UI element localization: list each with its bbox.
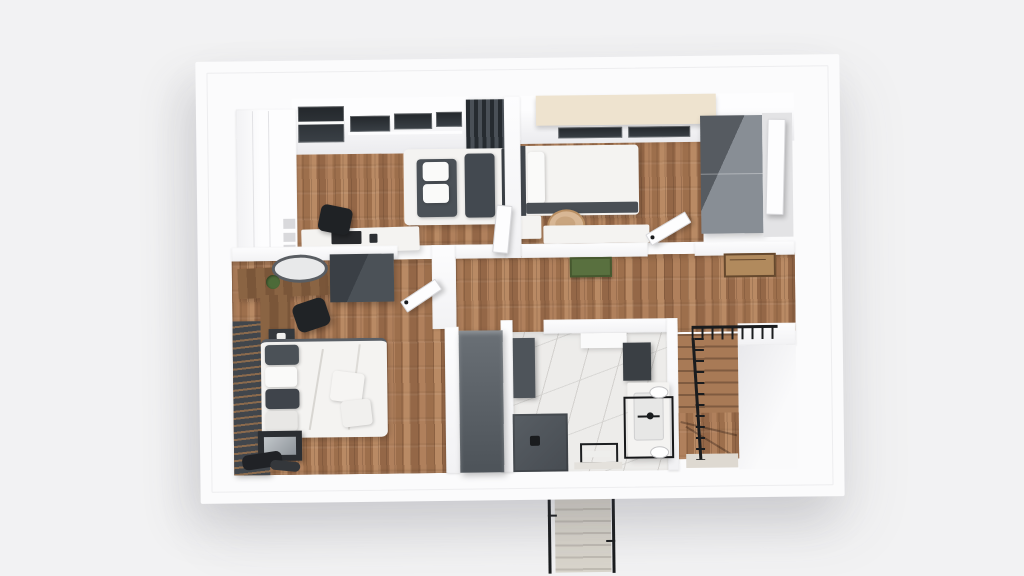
bed1-pillow-1 — [423, 162, 449, 181]
faucet-bar — [638, 415, 660, 417]
desk1-item — [369, 234, 377, 243]
white-wardrobe — [236, 109, 298, 254]
tall-wardrobe — [459, 330, 505, 473]
bedroom2-window-2 — [628, 126, 690, 138]
entry-rail-left — [548, 494, 552, 574]
entry-stair-treads — [555, 496, 612, 573]
apartment-plan — [0, 0, 1024, 576]
skylight-frame — [298, 121, 344, 125]
wardrobe-cubby-2 — [283, 233, 295, 242]
master-pillow-3 — [265, 389, 299, 409]
bedroom2-closet-door — [766, 119, 786, 215]
wall-mid-3 — [522, 242, 648, 258]
bath-mat — [574, 462, 622, 470]
bed1-throw-2 — [464, 153, 495, 217]
bedroom2-door-handle — [650, 235, 654, 239]
master-door-handle — [404, 300, 408, 304]
wardrobe-cubby-1 — [283, 219, 295, 229]
bed2-pillow — [527, 152, 545, 204]
entry-rail-right — [612, 493, 616, 573]
bed2-foot-strip — [526, 202, 638, 214]
window-pane-2 — [394, 113, 432, 129]
towel — [583, 451, 611, 457]
cream-canopy — [536, 94, 716, 126]
entry-rail-bar2 — [606, 540, 615, 542]
master-pillow-1 — [265, 345, 299, 365]
green-doormat — [570, 257, 612, 278]
stairwell-void — [738, 345, 798, 470]
window-pane-3 — [436, 112, 462, 127]
stair-landing — [686, 453, 738, 468]
desk2 — [543, 224, 649, 243]
gray-dresser — [330, 254, 395, 303]
bath-dark-panel — [623, 342, 651, 380]
floorplan-render — [0, 0, 1024, 576]
bath-shelf — [581, 333, 627, 349]
window-pane-1 — [350, 116, 390, 132]
stair-rail-posts-top — [692, 327, 778, 340]
bath-cabinet — [513, 338, 536, 398]
jute-rug — [724, 253, 776, 278]
shower-fixture — [530, 436, 540, 446]
master-pillow-2 — [265, 367, 297, 387]
shower — [513, 413, 569, 472]
stairs-upper-flight — [678, 333, 739, 416]
throw-pillow-2 — [340, 398, 373, 427]
plant — [266, 275, 280, 289]
wall-bath-top — [543, 318, 677, 334]
master-pillow-4 — [266, 411, 298, 431]
entry-rail-bar1 — [548, 515, 557, 517]
bed1-pillow-2 — [423, 184, 449, 203]
bedroom2-window-1 — [558, 127, 622, 139]
